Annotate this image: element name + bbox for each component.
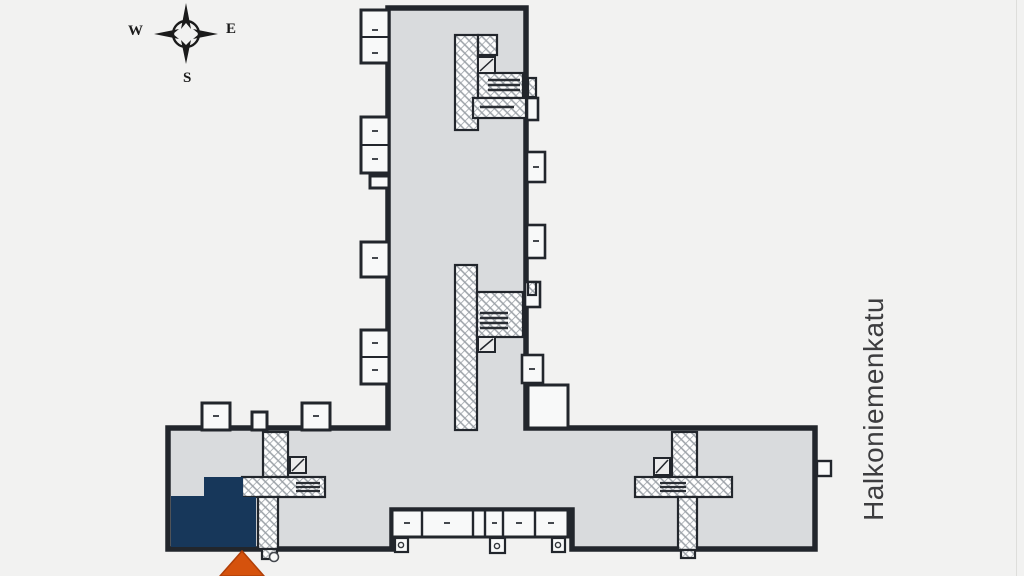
- compass-south-label: S: [183, 70, 191, 87]
- east-end-box: [817, 461, 831, 476]
- corner-room: [528, 385, 568, 428]
- compass-west-label: W: [128, 23, 143, 40]
- northwest-balconies: [202, 403, 330, 430]
- south-porch-circles: [398, 542, 560, 548]
- image-edge-divider: [1016, 0, 1017, 576]
- location-arrow-icon: [220, 551, 264, 576]
- west-balconies: [361, 10, 389, 384]
- south-porches: [395, 538, 565, 553]
- stairwell-west-mark: [270, 553, 279, 562]
- floorplan-canvas: W E S Halkoniemenkatu: [0, 0, 1024, 576]
- south-balcony-row: [392, 510, 568, 537]
- west-balcony-dividers: [361, 37, 389, 357]
- compass-rose-icon: [154, 3, 218, 64]
- street-name-label: Halkoniemenkatu: [858, 249, 892, 569]
- compass-east-label: E: [226, 21, 236, 38]
